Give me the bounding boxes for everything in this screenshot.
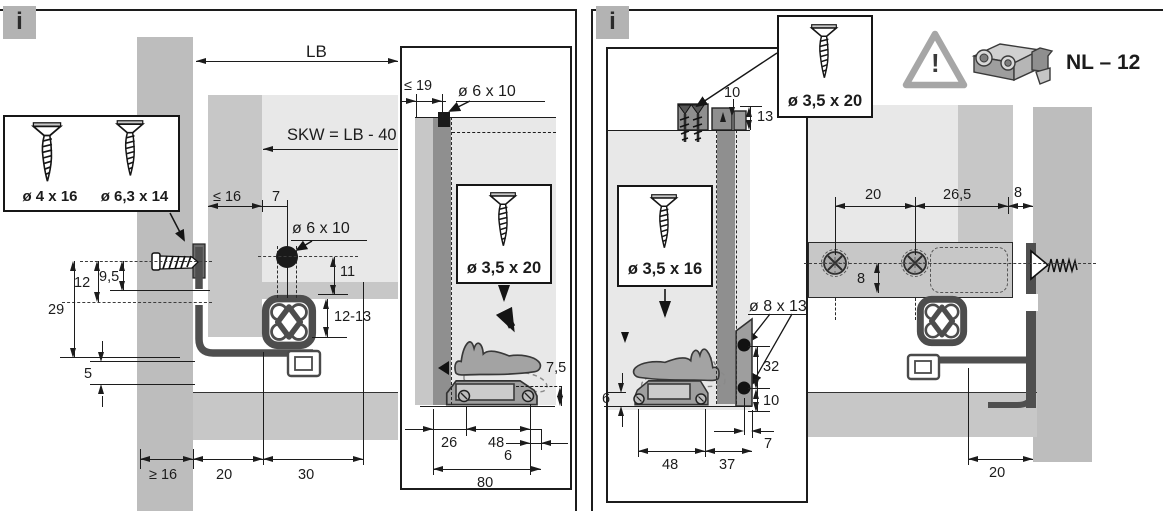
- drawer-bottom-top-view: [808, 105, 958, 242]
- bracket-dashed-outline: [930, 247, 1008, 293]
- dim-7: 7: [272, 190, 280, 205]
- arrowhead: [94, 292, 100, 302]
- baseline: [420, 406, 555, 407]
- dim-80: 80: [477, 476, 493, 491]
- arrowhead: [140, 456, 150, 462]
- dim-7: 7: [764, 437, 772, 452]
- arrowhead: [734, 428, 744, 434]
- ext-line: [442, 94, 443, 118]
- arrowhead: [330, 285, 336, 295]
- ext-line: [263, 352, 264, 465]
- pin-hole: [276, 246, 298, 268]
- arrowhead: [557, 396, 563, 406]
- arrowhead: [1023, 456, 1033, 462]
- screw-size-label: ø 3,5 x 16: [617, 261, 713, 278]
- dim-5: 5: [84, 367, 92, 382]
- arrowhead: [263, 456, 273, 462]
- arrowhead: [119, 261, 125, 271]
- arrowhead: [753, 402, 759, 412]
- arrowhead: [70, 348, 76, 358]
- arrowhead: [94, 261, 100, 271]
- dim-stem: [714, 431, 734, 432]
- dim-line: [506, 443, 568, 444]
- drawer-top-edge: [606, 130, 750, 131]
- dim-8-v: 8: [857, 272, 865, 287]
- dim-stem: [102, 341, 103, 352]
- dim-20-bottom: 20: [989, 466, 1005, 481]
- arrowhead: [98, 352, 104, 362]
- arrowhead: [423, 426, 433, 432]
- bottom-hidden-edge: [452, 132, 556, 133]
- ext-line: [530, 404, 531, 475]
- screw-size-label: ø 6,3 x 14: [92, 189, 177, 204]
- label-hole-8x13: ø 8 x 13: [749, 299, 807, 315]
- arrowhead: [751, 428, 761, 434]
- center-line: [258, 256, 358, 257]
- arrowhead: [1008, 203, 1018, 209]
- panel-top-edge: [415, 117, 556, 118]
- dim-30: 30: [298, 468, 314, 483]
- dim-min16: ≥ 16: [149, 468, 177, 483]
- arrowhead: [183, 456, 193, 462]
- arrowhead: [1023, 203, 1033, 209]
- arrowhead: [835, 203, 845, 209]
- cabinet-rear-wall: [1033, 107, 1092, 462]
- arrowhead: [196, 58, 206, 64]
- info-label: i: [609, 8, 616, 35]
- arrowhead: [968, 456, 978, 462]
- ext-line: [748, 388, 770, 389]
- arrowhead: [705, 448, 715, 454]
- screw-size-label: ø 4 x 16: [10, 189, 90, 204]
- dim-6: 6: [504, 449, 512, 464]
- arrowhead: [753, 347, 759, 357]
- baseline: [627, 406, 752, 407]
- ext-line: [416, 94, 417, 118]
- arrowhead: [466, 426, 476, 432]
- dim-line: [208, 206, 287, 207]
- cabinet-bottom-panel: [193, 392, 398, 440]
- arrowhead: [618, 383, 624, 393]
- dim-12-13: 12-13: [334, 310, 371, 325]
- ext-line: [744, 398, 745, 435]
- drawer-back-top-view: [958, 105, 1013, 242]
- dim-stem: [622, 416, 623, 427]
- dim-12: 12: [74, 276, 90, 291]
- screw-axis-line: [804, 263, 1096, 264]
- arrowhead: [742, 448, 752, 454]
- dim-10-top: 10: [724, 86, 740, 101]
- arrowhead: [746, 120, 752, 130]
- arrowhead: [193, 456, 203, 462]
- cabinet-side-wall: [137, 37, 193, 511]
- cabinet-bottom-right: [808, 392, 1037, 437]
- ext-line: [262, 200, 263, 212]
- arrowhead: [323, 299, 329, 309]
- dim-line: [433, 469, 541, 470]
- dim-6: 6: [602, 392, 610, 407]
- dim-7-5: 7,5: [546, 361, 566, 376]
- drawer-side-panel: [208, 95, 262, 337]
- arrowhead: [388, 58, 398, 64]
- arrowhead: [720, 112, 726, 122]
- dim-11: 11: [340, 265, 355, 280]
- dim-48: 48: [488, 436, 504, 451]
- dim-line: [140, 459, 363, 460]
- arrowhead: [520, 440, 530, 446]
- dim-stem: [102, 396, 103, 407]
- back-panel-edge: [716, 130, 717, 404]
- label-hole-rear: ø 6 x 10: [458, 84, 516, 100]
- arrowhead: [753, 379, 759, 389]
- dim-20: 20: [865, 188, 881, 203]
- info-icon: i: [3, 6, 36, 39]
- screw-hidden-line: [835, 298, 836, 320]
- ext-line: [312, 337, 347, 338]
- dim-29: 29: [48, 303, 64, 318]
- info-label: i: [16, 8, 23, 35]
- arrowhead: [330, 257, 336, 267]
- dim-line: [196, 61, 398, 62]
- dim-skw: SKW = LB - 40: [287, 127, 397, 144]
- arrowhead: [998, 203, 1008, 209]
- dim-26: 26: [441, 436, 457, 451]
- ext-line: [62, 302, 212, 303]
- arrowhead: [915, 203, 925, 209]
- arrowhead: [874, 283, 880, 293]
- arrowhead: [541, 440, 551, 446]
- arrowhead: [638, 448, 648, 454]
- ext-line: [968, 368, 969, 465]
- ext-line: [748, 346, 770, 347]
- ext-line: [60, 357, 180, 358]
- arrowhead: [874, 263, 880, 273]
- arrowhead: [98, 384, 104, 394]
- dim-stem: [761, 431, 774, 432]
- ext-line: [516, 386, 562, 387]
- screw-hidden-line: [915, 298, 916, 320]
- le ader-underline: [291, 240, 367, 241]
- arrowhead: [753, 389, 759, 399]
- label-hole-front: ø 6 x 10: [292, 221, 350, 237]
- warning-exclamation: !: [931, 50, 940, 76]
- dim-max19: ≤ 19: [404, 79, 432, 94]
- ext-line: [90, 361, 195, 362]
- arrowhead: [353, 456, 363, 462]
- dim-13: 13: [757, 110, 773, 125]
- dim-8-h: 8: [1014, 186, 1022, 201]
- panel-edge-dotted: [451, 117, 452, 405]
- arrowhead: [746, 107, 752, 117]
- arrowhead: [432, 98, 442, 104]
- dim-48: 48: [662, 458, 678, 473]
- ext-line: [90, 384, 195, 385]
- arrowhead: [618, 406, 624, 416]
- leader-underline: [456, 101, 545, 102]
- part-code: NL – 12: [1066, 52, 1140, 73]
- back-panel-edge: [736, 130, 737, 404]
- dim-9-5: 9,5: [99, 270, 119, 285]
- dim-20: 20: [216, 468, 232, 483]
- dim-10-side: 10: [763, 394, 779, 409]
- arrowhead: [253, 456, 263, 462]
- arrowhead: [520, 426, 530, 432]
- dim-37: 37: [719, 458, 735, 473]
- screw-size-label: ø 3,5 x 20: [456, 260, 552, 277]
- arrowhead: [695, 448, 705, 454]
- dim-26-5: 26,5: [943, 188, 971, 203]
- arrowhead: [263, 146, 273, 152]
- arrowhead: [433, 466, 443, 472]
- arrowhead: [531, 466, 541, 472]
- installation-instruction-sheet: i i: [0, 0, 1163, 511]
- dim-line: [263, 149, 398, 150]
- dim-32: 32: [763, 360, 779, 375]
- arrowhead: [323, 327, 329, 337]
- drawer-bottom-panel: [240, 282, 398, 299]
- ext-line: [110, 290, 210, 291]
- arrowhead: [70, 261, 76, 271]
- arrowhead: [208, 203, 218, 209]
- screw-size-label: ø 3,5 x 20: [777, 93, 873, 110]
- arrowhead: [119, 281, 125, 291]
- arrowhead: [905, 203, 915, 209]
- arrowhead: [252, 203, 262, 209]
- info-icon: i: [596, 6, 629, 39]
- arrowhead: [729, 107, 735, 117]
- arrowhead: [406, 98, 416, 104]
- screw-head-rear: [438, 112, 450, 127]
- dim-lb: LB: [306, 43, 327, 60]
